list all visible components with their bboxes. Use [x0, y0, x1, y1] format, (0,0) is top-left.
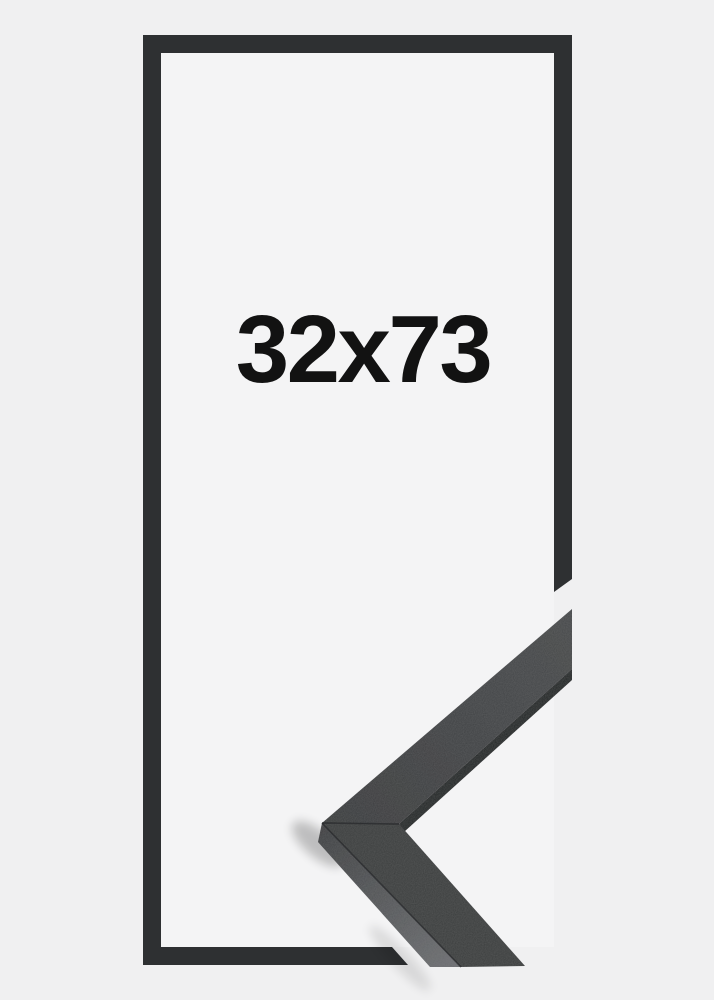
frame-size-diagram: 32x73 [0, 0, 714, 1000]
frame-outline-interior [161, 53, 554, 947]
frame-outline-top [143, 35, 572, 53]
frame-outline-right [554, 35, 572, 592]
frame-outline-left [143, 35, 161, 965]
frame-outline-bottom [143, 947, 408, 965]
frame-size-label: 32x73 [236, 302, 490, 398]
